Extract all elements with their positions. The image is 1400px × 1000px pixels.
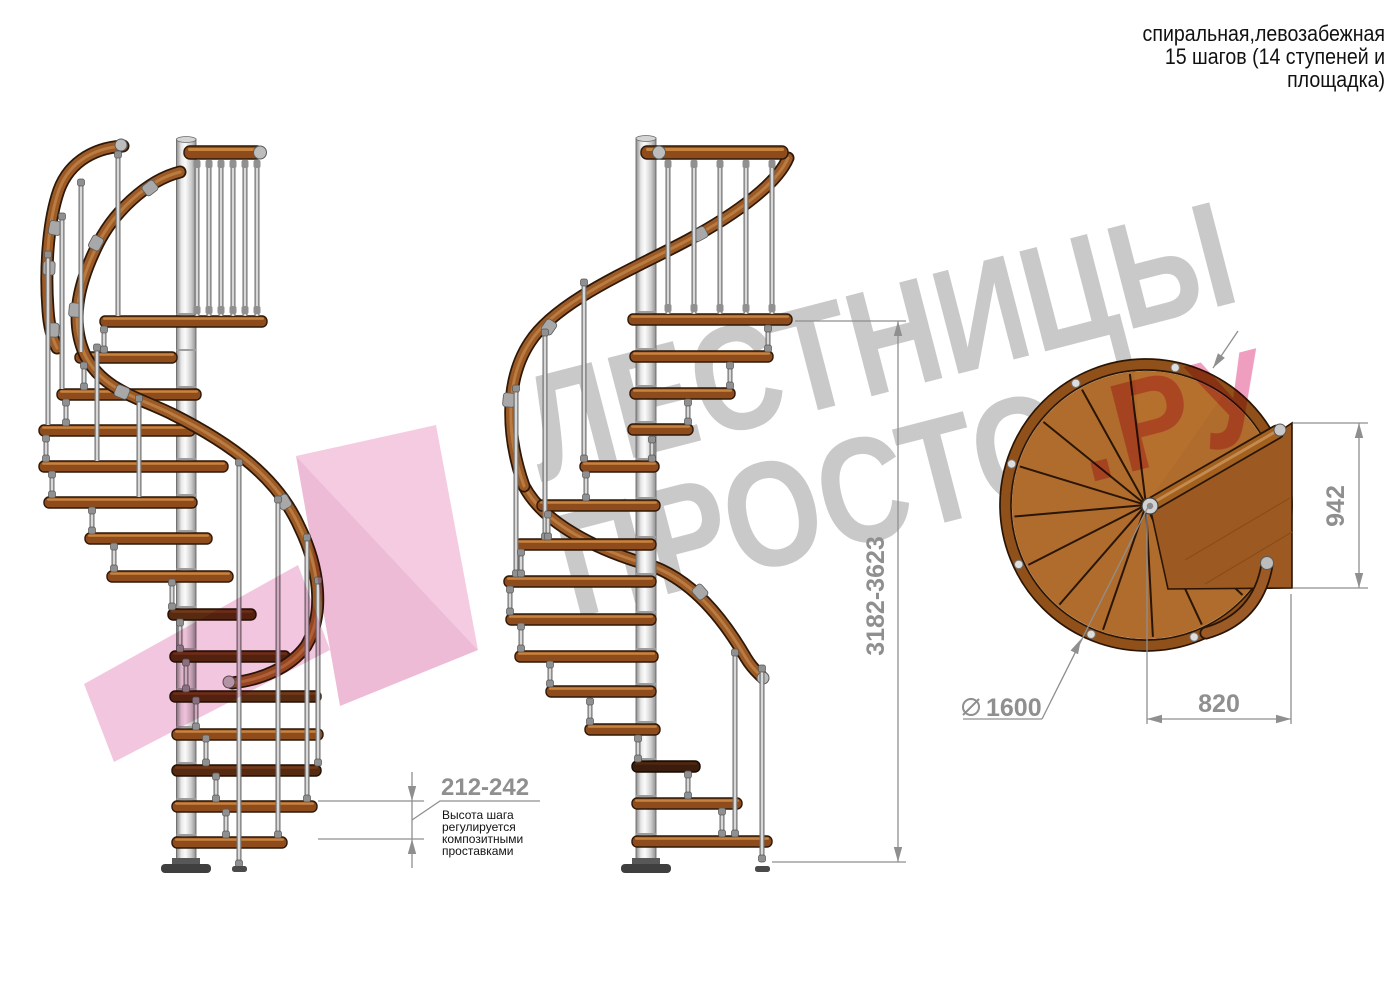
- svg-text:212-242: 212-242: [441, 774, 529, 801]
- svg-text:Высота шагарегулируетсякомпози: Высота шагарегулируетсякомпозитнымипрост…: [442, 808, 523, 858]
- svg-text:820: 820: [1198, 690, 1240, 718]
- svg-text:942: 942: [1322, 485, 1350, 527]
- svg-text:3182-3623: 3182-3623: [862, 536, 890, 656]
- svg-text:спиральная,левозабежная15 шаго: спиральная,левозабежная15 шагов (14 ступ…: [1143, 22, 1385, 92]
- svg-text:1600: 1600: [986, 694, 1042, 722]
